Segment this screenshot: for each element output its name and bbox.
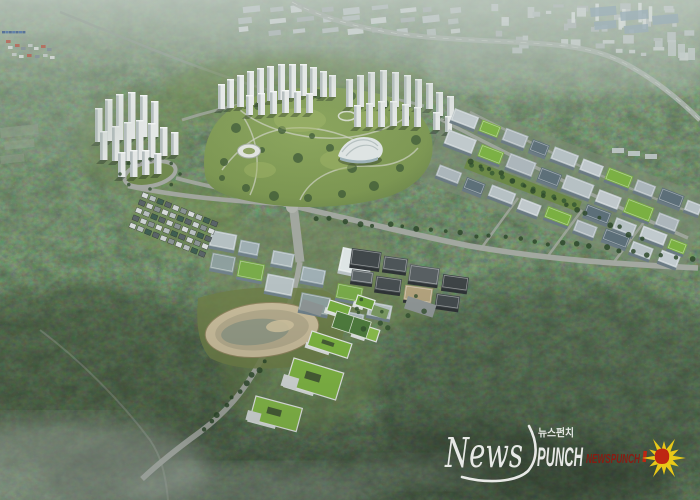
watermark-badge-text: NEWSPUNCH: [586, 452, 641, 466]
rendering-canvas: News PUNCH 뉴스펀치 NEWSPUNCH: [0, 0, 700, 500]
color-grade: [0, 0, 700, 500]
watermark-punch-text: PUNCH: [537, 442, 583, 472]
fist-icon: [655, 449, 670, 465]
watermark-news-text: News: [444, 429, 523, 477]
watermark-korean-text: 뉴스펀치: [538, 426, 574, 439]
aerial-rendering: News PUNCH 뉴스펀치 NEWSPUNCH: [0, 0, 700, 500]
